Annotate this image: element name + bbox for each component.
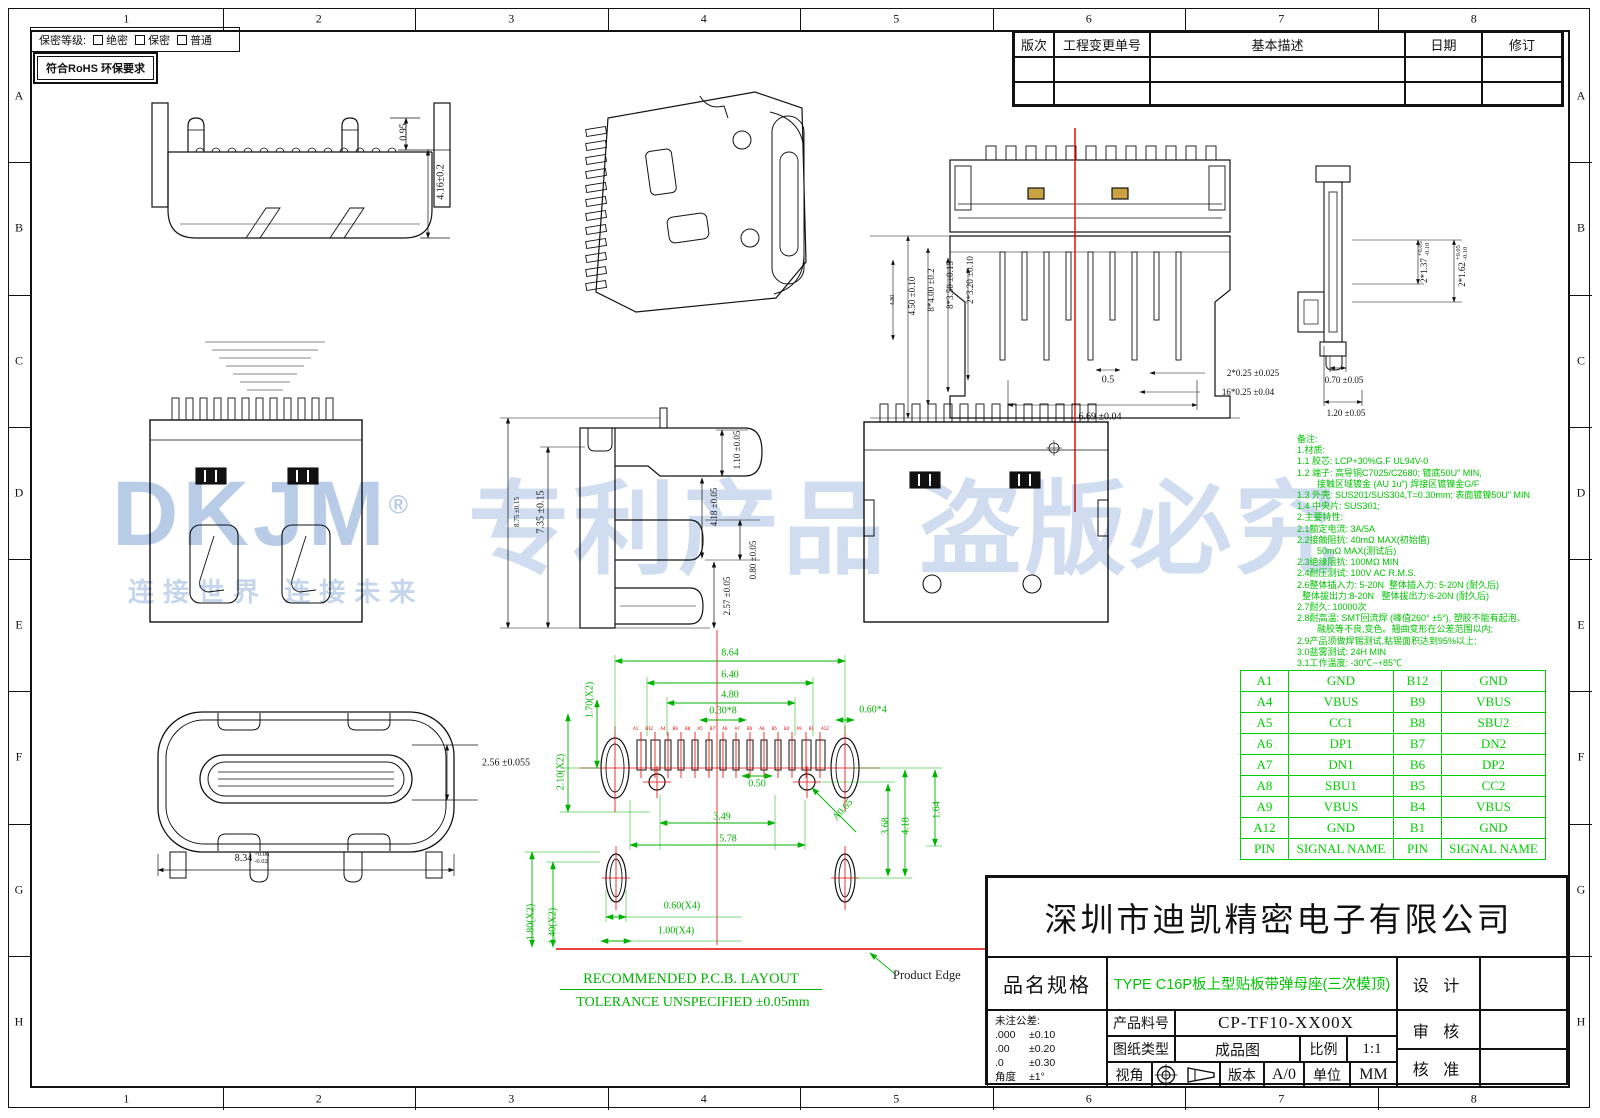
notes-block: 备注:1.材质:1.1 胶芯: LCP+30%G.F UL94V-01.2 端子… [1297, 434, 1565, 669]
dim-label: 5.78 [719, 834, 737, 845]
dim-label: 0.70 ±0.05 [1325, 375, 1364, 385]
dim-label: 8*3.50 ±0.15 [945, 261, 955, 309]
version-value: A/0 [1264, 1062, 1304, 1087]
pin-table-cell: A6 [1241, 734, 1289, 755]
dim-label: 8*4.00 ±0.2 [926, 268, 936, 311]
security-label: 保密等级: [39, 32, 86, 48]
tolerance-row: .0±0.30 [995, 1056, 1055, 1070]
pin-table-cell: GND [1289, 818, 1394, 839]
approve-signature-cell [1480, 1049, 1570, 1087]
dim-label: 2.10(X2) [556, 754, 567, 790]
dim-label: 4.80 [890, 295, 896, 306]
pin-table-cell: VBUS [1442, 797, 1546, 818]
dim-label: 8.34+0.06-0.02 [235, 851, 270, 865]
review-signature-cell [1480, 1010, 1570, 1049]
pin-table-cell: PIN [1394, 839, 1442, 860]
pin-table-row: A7DN1B6DP2 [1241, 755, 1546, 776]
drawing-sheet: 1122334455667788AABBCCDDEEFFGGHH [0, 0, 1600, 1118]
note-line: 1.材质: [1297, 445, 1565, 456]
rohs-text: 符合RoHS 环保要求 [37, 56, 154, 80]
pad-label: A8 [759, 726, 764, 731]
view-angle-label: 视角 [1107, 1062, 1152, 1087]
pin-table-cell: A7 [1241, 755, 1289, 776]
dim-label: 2*1.37+0.05-0.10 [1417, 241, 1431, 283]
pcb-layout-title: RECOMMENDED P.C.B. LAYOUT [560, 971, 822, 990]
unit-value: MM [1350, 1062, 1397, 1087]
revision-header-cell: 工程变更单号 [1054, 32, 1150, 57]
pin-signal-table: A1GNDB12GNDA4VBUSB9VBUSA5CC1B8SBU2A6DP1B… [1240, 670, 1546, 860]
dim-label: 0.5 [1102, 375, 1115, 386]
security-checkbox-0[interactable] [93, 35, 103, 45]
note-line: 2.8耐高温: SMT回流焊 (峰值260° ±5°), 塑胶不能有起泡、 [1297, 613, 1565, 624]
pad-label: B6 [747, 726, 752, 731]
pin-table-cell: A9 [1241, 797, 1289, 818]
security-options: 绝密保密普通 [86, 32, 212, 48]
first-angle-projection-icon [1154, 1064, 1218, 1086]
revision-header-cell: 日期 [1405, 32, 1482, 57]
tolerance-row: .000±0.10 [995, 1028, 1055, 1042]
dim-label: 4.50 ±0.10 [907, 277, 917, 316]
view-side-clip [1298, 166, 1462, 406]
pad-label: B8 [685, 726, 690, 731]
pin-table-cell: DP1 [1289, 734, 1394, 755]
dim-label: 6.69 ±0.04 [1079, 412, 1122, 423]
note-line: 2.2接触阻抗: 40mΩ MAX(初始值) [1297, 535, 1565, 546]
pin-table-cell: A12 [1241, 818, 1289, 839]
note-line: 2.1额定电流: 3A/5A [1297, 524, 1565, 535]
pin-table-row: A1GNDB12GND [1241, 671, 1546, 692]
dim-label: 0.60*4 [859, 705, 887, 716]
dim-label: 1.00(X4) [658, 926, 694, 937]
part-spec-value: TYPE C16P板上型贴板带弹母座(三次模顶) [1107, 957, 1397, 1010]
note-line: 1.4 中央片: SUS301; [1297, 501, 1565, 512]
pin-table-cell: SBU2 [1442, 713, 1546, 734]
revision-empty-cell [1014, 82, 1054, 105]
note-line: 2.主要特性: [1297, 512, 1565, 523]
scale-label: 比例 [1300, 1036, 1347, 1062]
note-line: 2.4耐压测试: 100V AC R.M.S. [1297, 568, 1565, 579]
doc-type-label: 图纸类型 [1107, 1036, 1175, 1062]
pin-table-cell: A5 [1241, 713, 1289, 734]
pin-table-cell: B7 [1394, 734, 1442, 755]
dim-label: 2*0.25 ±0.025 [1227, 368, 1279, 378]
dim-label: 8.75 ±0.15 [513, 497, 521, 527]
dim-label: 1.64 [932, 801, 943, 819]
revision-empty-cell [1405, 82, 1482, 105]
projection-symbols [1152, 1062, 1220, 1087]
revision-empty-cell [1054, 57, 1150, 82]
part-no-value: CP-TF10-XX00X [1175, 1010, 1397, 1036]
note-line: 2.3绝缘阻抗: 100MΩ MIN [1297, 557, 1565, 568]
dim-label: 7.35 ±0.15 [536, 491, 547, 534]
security-checkbox-2[interactable] [177, 35, 187, 45]
review-label: 审 核 [1397, 1010, 1480, 1049]
dim-label: 1.70(X2) [585, 682, 596, 718]
dim-label: 8.64 [721, 648, 739, 659]
view-isometric [586, 92, 806, 312]
dim-label: 2.56 ±0.055 [482, 758, 530, 769]
pin-table-cell: GND [1289, 671, 1394, 692]
pin-table-row: A4VBUSB9VBUS [1241, 692, 1546, 713]
pin-table-cell: A1 [1241, 671, 1289, 692]
approve-label: 核 准 [1397, 1049, 1480, 1087]
pin-table-cell: PIN [1241, 839, 1289, 860]
pin-table-cell: DP2 [1442, 755, 1546, 776]
dim-label: 0.30*8 [709, 706, 737, 717]
dim-label: 16*0.25 ±0.04 [1222, 387, 1274, 397]
revision-table: 版次工程变更单号基本描述日期修订 [1012, 30, 1564, 107]
note-line: 整体拔出力:8-20N 整体拔出力:6-20N (耐久后) [1297, 591, 1565, 602]
pad-label: A4 [660, 726, 665, 731]
revision-empty-cell [1482, 57, 1562, 82]
security-option: 普通 [177, 32, 212, 48]
security-checkbox-1[interactable] [135, 35, 145, 45]
note-line: 3.1工作温度: -30℃~+85℃ [1297, 658, 1565, 669]
pin-table-cell: B12 [1394, 671, 1442, 692]
pin-table-row: A9VBUSB4VBUS [1241, 797, 1546, 818]
part-spec-label: 品名规格 [987, 957, 1107, 1010]
security-option: 保密 [135, 32, 170, 48]
dim-label: 2*3.20 ±0.10 [965, 256, 975, 304]
pin-table-cell: B4 [1394, 797, 1442, 818]
design-label: 设 计 [1397, 957, 1480, 1010]
dim-label: 0.95 [399, 123, 410, 141]
tolerance-title: 未注公差: [995, 1014, 1040, 1028]
security-option-label: 普通 [190, 32, 212, 48]
revision-empty-cell [1150, 57, 1405, 82]
pad-label: B9 [673, 726, 678, 731]
version-label: 版本 [1220, 1062, 1264, 1087]
unit-label: 单位 [1304, 1062, 1350, 1087]
dim-label: 0.60(X4) [664, 901, 700, 912]
revision-empty-cell [1150, 82, 1405, 105]
pin-table-cell: VBUS [1442, 692, 1546, 713]
title-block: 深圳市迪凯精密电子有限公司 品名规格 TYPE C16P板上型贴板带弹母座(三次… [985, 875, 1568, 1085]
note-line: 2.7耐久: 10000次 [1297, 602, 1565, 613]
note-line: 3.0盐雾测试: 24H MIN [1297, 647, 1565, 658]
view-top-left [150, 342, 362, 622]
view-rear-assembly [870, 128, 1240, 512]
product-edge-label: Product Edge [893, 968, 961, 983]
pad-label: A7 [734, 726, 739, 731]
pin-table-cell: SIGNAL NAME [1289, 839, 1394, 860]
revision-empty-cell [1482, 82, 1562, 105]
security-option-label: 保密 [148, 32, 170, 48]
pad-label: B1 [809, 726, 814, 731]
pin-table-cell: B6 [1394, 755, 1442, 776]
pin-table-cell: DN2 [1442, 734, 1546, 755]
tolerance-rows: .000±0.10.00±0.20.0±0.30角度±1° [995, 1028, 1055, 1084]
pin-table-cell: A8 [1241, 776, 1289, 797]
dim-label: 4.16±0.2 [436, 164, 447, 200]
dim-label: 4.18 ±0.05 [709, 488, 719, 527]
pin-table-cell: VBUS [1289, 797, 1394, 818]
revision-empty-cell [1014, 57, 1054, 82]
pin-table-cell: B5 [1394, 776, 1442, 797]
security-option-label: 绝密 [106, 32, 128, 48]
note-line: 50mΩ MAX(测试后) [1297, 546, 1565, 557]
security-option: 绝密 [93, 32, 128, 48]
dim-label: 0.80 ±0.05 [748, 541, 758, 580]
rohs-badge: 符合RoHS 环保要求 [33, 52, 158, 84]
note-line: 融胶等不良,变色。翘曲变形在公差范围以内; [1297, 624, 1565, 635]
pad-label: A1 [633, 726, 638, 731]
note-line: 1.1 胶芯: LCP+30%G.F UL94V-0 [1297, 456, 1565, 467]
dim-label: 1.20 ±0.05 [1327, 408, 1366, 418]
note-line: 1.3 外壳: SUS201/SUS304,T=0.30mm; 表面镀镍50U"… [1297, 490, 1565, 501]
pin-table-cell: SIGNAL NAME [1442, 839, 1546, 860]
tolerance-row: .00±0.20 [995, 1042, 1055, 1056]
pad-label: B12 [645, 726, 653, 731]
dim-label: 4.80 [721, 690, 739, 701]
pad-label: A12 [821, 726, 829, 731]
pin-table-cell: CC2 [1442, 776, 1546, 797]
pcb-tolerance-note: TOLERANCE UNSPECIFIED ±0.05mm [548, 995, 838, 1011]
view-top-right [864, 404, 1108, 622]
scale-value: 1:1 [1347, 1036, 1397, 1062]
pin-table-cell: A4 [1241, 692, 1289, 713]
dim-label: 3.68 [881, 817, 892, 835]
design-signature-cell [1480, 957, 1570, 1010]
revision-empty-cell [1054, 82, 1150, 105]
view-front-face [158, 712, 478, 882]
tolerance-block: 未注公差: .000±0.10.00±0.20.0±0.30角度±1° [987, 1010, 1107, 1087]
pin-table-cell: GND [1442, 818, 1546, 839]
pad-label: A6 [722, 726, 727, 731]
dim-label: 2*1.62+0.05-0.10 [1455, 245, 1469, 287]
pin-table-cell: VBUS [1289, 692, 1394, 713]
dim-label: 1.80(X2) [526, 904, 537, 940]
pin-table-cell: B1 [1394, 818, 1442, 839]
pad-label: A9 [796, 726, 801, 731]
pcb-pad-labels: A1B12A4B9B8A5B7A6A7B6A8B5B4A9B1A12 [633, 726, 829, 731]
pad-label: A5 [697, 726, 702, 731]
pin-table-row: A8SBU1B5CC2 [1241, 776, 1546, 797]
dim-label: 1.10 ±0.05 [732, 431, 742, 470]
dim-label: 1.40(X2) [548, 908, 559, 944]
dim-label: 6.40 [721, 670, 739, 681]
revision-header-cell: 版次 [1014, 32, 1054, 57]
security-classification-box: 保密等级: 绝密保密普通 [30, 27, 240, 52]
dim-label: 4.18 [901, 817, 912, 835]
pin-table-cell: DN1 [1289, 755, 1394, 776]
revision-empty-cell [1405, 57, 1482, 82]
revision-header-cell: 基本描述 [1150, 32, 1405, 57]
note-line: 2.9产品须做焊锡测试,粘锡面积达到95%以上; [1297, 636, 1565, 647]
pin-table-row: A6DP1B7DN2 [1241, 734, 1546, 755]
part-no-label: 产品料号 [1107, 1010, 1175, 1036]
dim-label: 3.49 [713, 812, 731, 823]
pin-table-row: PINSIGNAL NAMEPINSIGNAL NAME [1241, 839, 1546, 860]
pin-table-row: A5CC1B8SBU2 [1241, 713, 1546, 734]
pin-table-cell: CC1 [1289, 713, 1394, 734]
dim-label: 2.57 ±0.05 [722, 577, 732, 616]
note-line: 接触区域镀金 (AU 1u") 焊接区镀镍金G/F [1297, 479, 1565, 490]
pin-table-cell: B8 [1394, 713, 1442, 734]
dim-label: 0.50 [748, 779, 766, 790]
pad-label: B7 [710, 726, 715, 731]
pin-table-cell: SBU1 [1289, 776, 1394, 797]
tolerance-row: 角度±1° [995, 1070, 1055, 1084]
company-name: 深圳市迪凯精密电子有限公司 [987, 877, 1570, 957]
pad-label: B5 [772, 726, 777, 731]
revision-header-cell: 修订 [1482, 32, 1562, 57]
pin-table-row: A12GNDB1GND [1241, 818, 1546, 839]
note-line: 备注: [1297, 434, 1565, 445]
pin-table-cell: B9 [1394, 692, 1442, 713]
pin-table-cell: GND [1442, 671, 1546, 692]
note-line: 2.6整体插入力: 5-20N 整体插入力: 5-20N (耐久后) [1297, 580, 1565, 591]
note-line: 1.2 端子: 高导铜C7025/C2680; 镀底50U" MIN, [1297, 468, 1565, 479]
doc-type-value: 成品图 [1175, 1036, 1300, 1062]
pad-label: B4 [784, 726, 789, 731]
